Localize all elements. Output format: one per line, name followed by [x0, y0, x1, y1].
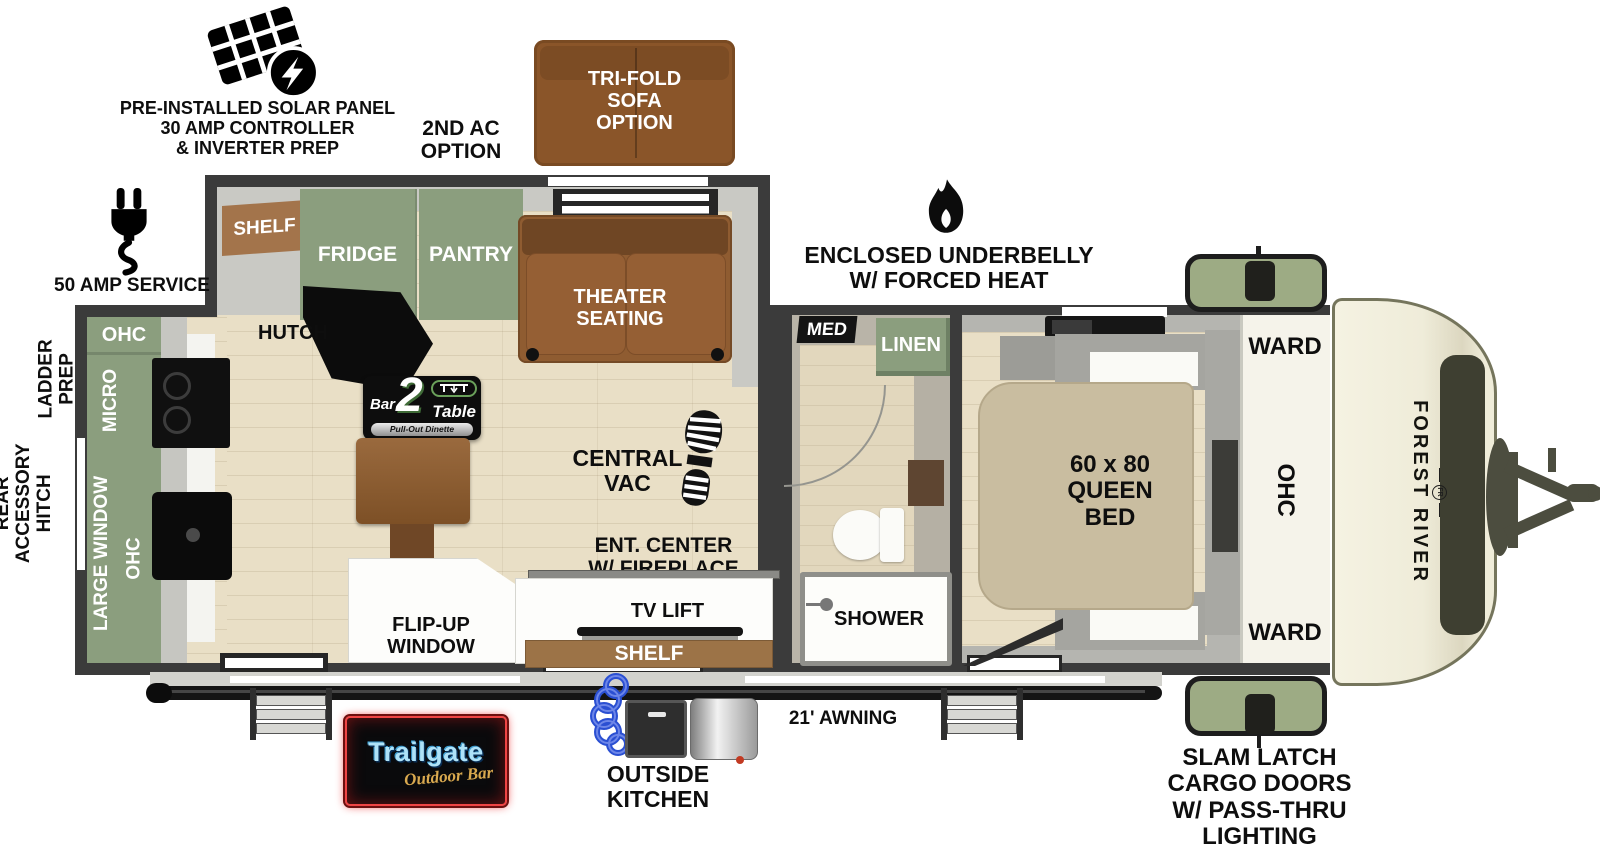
living-right-trim — [732, 187, 758, 387]
tri-fold-sofa-label: TRI-FOLD SOFA OPTION — [534, 68, 735, 134]
forest-river-label: FOREST RIVER — [1409, 400, 1432, 584]
rv-floorplan-diagram: OHC MICRO LARGE WINDOW OHC SHELF FRIDGE … — [0, 0, 1600, 849]
tv-lift-label: TV LIFT — [615, 600, 720, 622]
bath-wall-left-upper — [772, 305, 792, 383]
forest-river-brand: FR FOREST RIVER — [1408, 367, 1448, 617]
linen-cabinet: LINEN — [876, 318, 950, 376]
flip-up-window-label: FLIP-UP WINDOW — [375, 614, 487, 658]
trailgate-outdoor-bar-logo: Trailgate Outdoor Bar — [345, 716, 507, 806]
medicine-cabinet: MED — [797, 316, 858, 343]
upper-shelf: SHELF — [222, 200, 307, 256]
theater-foot-left — [526, 348, 539, 361]
step-tread — [256, 695, 326, 706]
outside-water-heater — [690, 698, 758, 760]
pantry: PANTRY — [419, 189, 523, 320]
entry-door-main — [220, 653, 328, 673]
pantry-label: PANTRY — [429, 243, 513, 266]
bath-mat — [908, 460, 944, 506]
fridge-label: FRIDGE — [318, 243, 397, 266]
upper-shelf-label: SHELF — [233, 215, 295, 240]
cargo-door-top-stem — [1256, 246, 1261, 256]
trailgate-title: Trailgate — [368, 737, 484, 768]
tv-lift-tv — [577, 627, 743, 636]
hitch-ball-tip — [1588, 486, 1600, 501]
outside-faucet-icon — [648, 712, 666, 717]
toilet-bowl — [833, 510, 887, 560]
bedroom-ohc-label: OHC — [1272, 450, 1298, 530]
b2t-bar-word: Bar — [370, 396, 395, 413]
enclosed-underbelly-label: ENCLOSED UNDERBELLY W/ FORCED HEAT — [790, 243, 1108, 294]
step-tread — [947, 695, 1017, 706]
awning-label: 21' AWNING — [768, 709, 918, 730]
pillow-shelf-bottom — [1090, 606, 1198, 640]
b2t-table-word: Table — [432, 402, 476, 422]
central-vac-label: CENTRAL VAC — [570, 446, 685, 497]
slam-latch-label: SLAM LATCH CARGO DOORS W/ PASS-THRU LIGH… — [1142, 745, 1377, 849]
pillow-shelf-top — [1090, 352, 1198, 386]
slideout-top-window — [548, 177, 708, 186]
awning-end-cap — [146, 683, 172, 703]
flame-icon — [926, 178, 968, 236]
sink-drain-icon — [186, 528, 200, 542]
bar-2-table-dinette-logo: Bar 2 Table Pull-Out Dinette — [363, 376, 481, 440]
roof-vent-inner — [1052, 320, 1092, 334]
tri-fold-sofa-option: TRI-FOLD SOFA OPTION — [534, 40, 735, 166]
step-tread — [947, 723, 1017, 734]
skirt-slot-2 — [745, 676, 1105, 683]
toilet-tank — [880, 508, 904, 562]
solar-callout-label: PRE-INSTALLED SOLAR PANEL 30 AMP CONTROL… — [100, 99, 415, 158]
hutch-label: HUTCH — [238, 322, 348, 344]
theater-foot-right — [711, 348, 724, 361]
kitchen-micro-label: MICRO — [101, 353, 122, 448]
lower-shelf-label: SHELF — [615, 642, 684, 665]
step-tread — [256, 723, 326, 734]
cooktop-burner-1 — [163, 372, 191, 400]
outside-kitchen-label: OUTSIDE KITCHEN — [588, 762, 728, 813]
heater-valve-icon — [736, 756, 744, 764]
cooktop-burner-2 — [163, 406, 191, 434]
theater-seating-label: THEATER SEATING — [540, 286, 700, 330]
ward-upper-label: WARD — [1240, 334, 1330, 360]
rear-accessory-hitch-label: REAR ACCESSORY HITCH — [0, 416, 56, 591]
step-tread — [947, 709, 1017, 720]
med-label: MED — [806, 320, 848, 340]
skirt-slot-1 — [230, 676, 520, 683]
theater-back-cushion — [522, 219, 728, 255]
outside-griddle — [625, 700, 687, 758]
fr-emblem-icon: FR — [1433, 468, 1448, 517]
kitchen-ohc-upper-label: OHC — [87, 324, 161, 346]
kitchen-cabinet-divider — [87, 352, 161, 355]
shower-label: SHOWER — [812, 608, 946, 630]
hitch-jack-pin — [1548, 448, 1556, 472]
rear-wall-window — [77, 438, 85, 570]
solar-panel-icon — [203, 2, 323, 100]
bedroom-tv — [1212, 440, 1238, 552]
kitchen-ohc-lower-label: OHC — [125, 503, 146, 613]
b2t-number: 2 — [396, 368, 423, 423]
kitchen-large-window-label: LARGE WINDOW — [92, 456, 113, 651]
second-ac-label: 2ND AC OPTION — [405, 117, 517, 163]
lower-shelf: SHELF — [525, 640, 773, 668]
b2t-tagline: Pull-Out Dinette — [371, 423, 473, 436]
nightstand — [1000, 336, 1055, 380]
cargo-door-bottom-latch-icon — [1245, 694, 1275, 734]
step-tread — [256, 709, 326, 720]
power-plug-icon — [102, 188, 156, 276]
queen-bed-label: 60 x 80 QUEEN BED — [1035, 452, 1185, 531]
pull-out-table-icon — [431, 380, 477, 397]
dinette-table — [356, 438, 470, 524]
shower-arm-icon — [806, 603, 822, 606]
ward-lower-label: WARD — [1240, 620, 1330, 646]
service-50-amp-label: 50 AMP SERVICE — [52, 276, 212, 297]
entry-steps-main — [250, 688, 332, 740]
cooktop — [152, 358, 230, 448]
linen-label: LINEN — [881, 334, 941, 356]
cargo-door-top-latch-icon — [1245, 261, 1275, 301]
bath-wall-left-lower — [772, 488, 792, 675]
entry-steps-bedroom — [941, 688, 1023, 740]
